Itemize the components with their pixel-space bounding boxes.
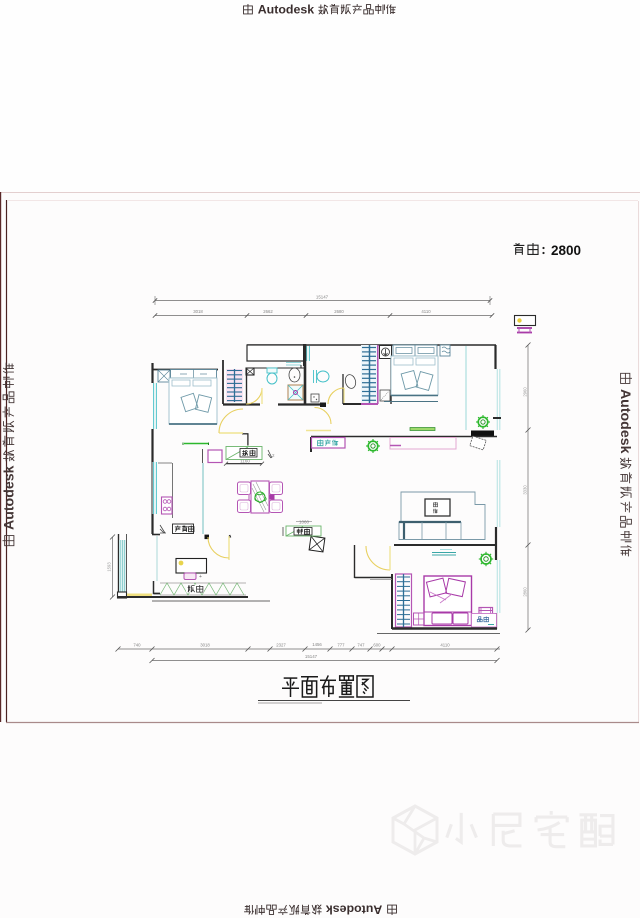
- svg-text:15147: 15147: [305, 654, 318, 659]
- svg-text:600: 600: [373, 643, 381, 648]
- svg-text:+: +: [199, 574, 202, 580]
- svg-text:740: 740: [133, 643, 141, 648]
- svg-text:3018: 3018: [200, 643, 210, 648]
- svg-text:3018: 3018: [193, 309, 203, 314]
- svg-text:Autodesk: Autodesk: [617, 389, 633, 454]
- svg-text:777: 777: [337, 643, 345, 648]
- svg-text:4110: 4110: [440, 643, 450, 648]
- svg-text:2960: 2960: [523, 387, 528, 397]
- svg-text:747: 747: [357, 643, 365, 648]
- svg-text:1160: 1160: [240, 458, 250, 463]
- svg-text:2860: 2860: [523, 587, 528, 597]
- svg-text:4110: 4110: [421, 309, 431, 314]
- svg-text:1456: 1456: [312, 642, 322, 647]
- svg-text:Autodesk: Autodesk: [2, 465, 18, 530]
- svg-text:2662: 2662: [263, 309, 273, 314]
- svg-text:1060: 1060: [299, 520, 310, 525]
- svg-text:3330: 3330: [523, 485, 528, 495]
- svg-text:15147: 15147: [316, 295, 329, 300]
- svg-text:1593: 1593: [107, 562, 112, 572]
- svg-text:2800: 2800: [551, 243, 581, 258]
- svg-text:2327: 2327: [276, 643, 286, 648]
- svg-text:2680: 2680: [334, 309, 344, 314]
- svg-text:Autodesk: Autodesk: [326, 902, 383, 916]
- svg-text:Autodesk: Autodesk: [258, 3, 315, 17]
